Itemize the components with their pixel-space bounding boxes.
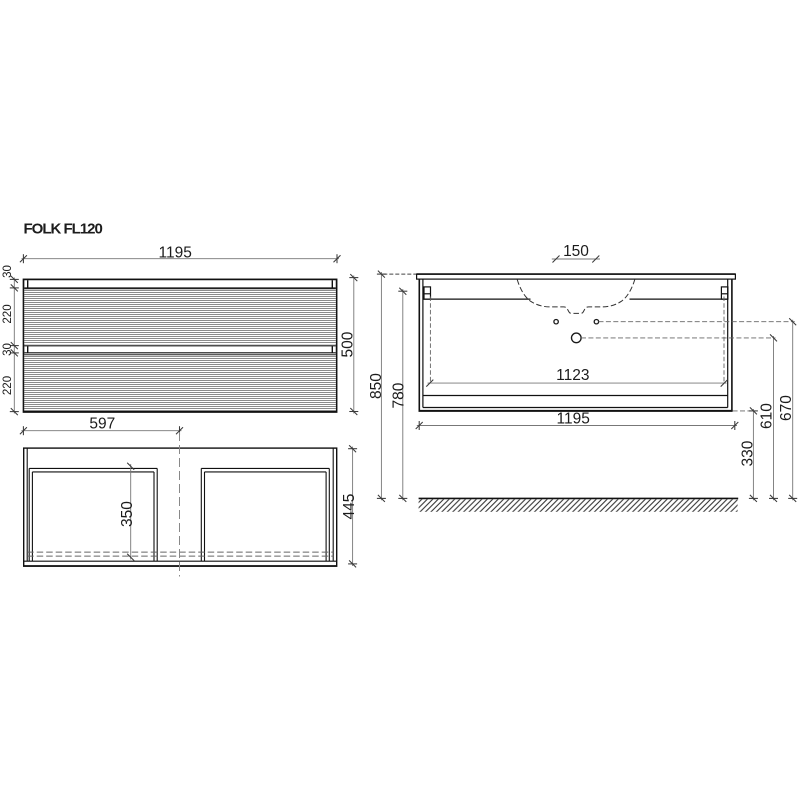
svg-text:597: 597 <box>89 416 115 433</box>
svg-text:220: 220 <box>2 304 14 323</box>
svg-text:445: 445 <box>341 494 358 520</box>
svg-text:1123: 1123 <box>556 367 589 384</box>
svg-text:30: 30 <box>2 265 14 278</box>
svg-text:670: 670 <box>778 395 795 421</box>
svg-text:150: 150 <box>563 243 589 260</box>
svg-text:30: 30 <box>2 343 14 356</box>
svg-text:1195: 1195 <box>159 244 192 261</box>
svg-text:330: 330 <box>740 440 757 466</box>
svg-text:850: 850 <box>368 373 385 399</box>
svg-text:FOLK FL120: FOLK FL120 <box>24 220 103 237</box>
svg-text:500: 500 <box>340 331 357 357</box>
svg-text:350: 350 <box>119 501 136 527</box>
svg-text:1195: 1195 <box>557 410 590 427</box>
svg-text:780: 780 <box>390 382 407 408</box>
svg-text:610: 610 <box>759 403 776 429</box>
svg-text:220: 220 <box>2 376 14 395</box>
